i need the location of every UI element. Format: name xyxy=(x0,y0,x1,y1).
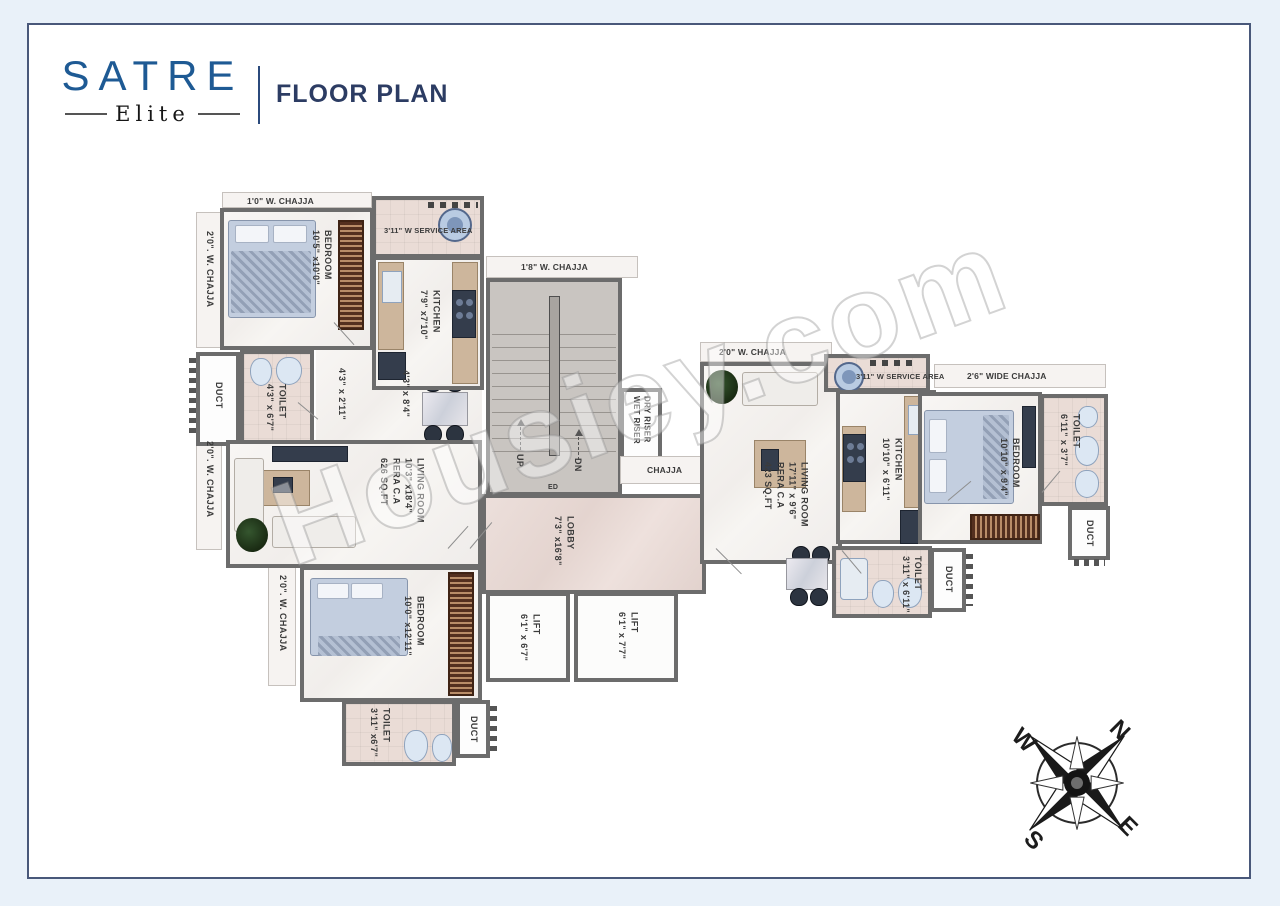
tv-unit-icon xyxy=(272,446,348,462)
dining-chair-icon xyxy=(810,588,828,606)
vent-grill-icon xyxy=(428,202,478,208)
pillow-icon xyxy=(929,419,947,453)
compass-north-label: N xyxy=(1104,715,1135,746)
stairs-ed-label: ED xyxy=(548,484,558,491)
plant-icon xyxy=(236,518,268,552)
page-title: FLOOR PLAN xyxy=(276,80,449,109)
duct1-left-unit: DUCT xyxy=(196,352,240,446)
toilet1-left-unit: TOILET 4'3" x 6'7" xyxy=(240,350,314,448)
bedroom-right-label: BEDROOM 10'10" x 9'4" xyxy=(998,438,1022,496)
duct-hatch-icon xyxy=(1074,559,1105,566)
compass-east-label: E xyxy=(1112,811,1142,841)
toilet-wc-icon xyxy=(276,357,302,385)
toilet1-right-label: TOILET 6'11" x 3'7" xyxy=(1058,414,1082,466)
bedroom2-left-label: BEDROOM 10'0" x12'11" xyxy=(402,596,426,656)
hob-icon xyxy=(452,290,476,338)
chajja-left-top: 1'0" W. CHAJJA xyxy=(222,192,372,208)
plant-icon xyxy=(706,370,738,404)
duct2-right-unit: DUCT xyxy=(930,548,966,612)
chajja-left-lower: 2'0". W. CHAJJA xyxy=(196,428,222,550)
toilet2-right-label: TOILET 3'11" x 6'11" xyxy=(900,556,924,613)
chajja-left-upper-label: 2'0". W. CHAJJA xyxy=(204,231,216,307)
down-arrow-icon xyxy=(578,432,579,460)
stairs-up-label: UP xyxy=(514,454,526,467)
duct2-left-label: DUCT xyxy=(468,716,480,743)
lift-1: LIFT 6'1" x 6'7" xyxy=(486,592,570,682)
sink-icon xyxy=(432,734,452,762)
brand-dash-left xyxy=(65,113,107,115)
duct-hatch-icon xyxy=(189,358,196,437)
toilet-wc-icon xyxy=(404,730,428,762)
desk-items-icon xyxy=(273,477,293,493)
duct-hatch-icon xyxy=(966,554,973,606)
service-area-left-label: 3'11" W SERVICE AREA xyxy=(384,226,473,235)
up-arrow-icon xyxy=(520,422,521,450)
toilet-wc-icon xyxy=(1075,470,1099,498)
toilet2-left-label: TOILET 3'11" x6'7" xyxy=(368,708,392,757)
wardrobe-icon xyxy=(970,514,1040,540)
chajja-left-bottom: 2'0". W. CHAJJA xyxy=(268,560,296,686)
toilet1-left-label: TOILET 4'3" x 6'7" xyxy=(264,384,288,431)
bedroom2-left-unit: BEDROOM 10'0" x12'11" xyxy=(300,566,482,702)
living-room-right-unit: LIVING ROOM 17'11" x 9'6" RERA C.A 423 S… xyxy=(700,362,842,564)
chajja-left-top-label: 1'0" W. CHAJJA xyxy=(247,196,314,206)
chajja-left-bottom-label: 2'0". W. CHAJJA xyxy=(277,575,289,651)
duct2-right-label: DUCT xyxy=(943,566,955,593)
lift2-label: LIFT 6'1" x 7'7" xyxy=(616,612,640,659)
sink-icon xyxy=(872,580,894,608)
chajja-mid-right: CHAJJA xyxy=(620,456,704,484)
brand-dash-right xyxy=(198,113,240,115)
duct1-right-unit: DUCT xyxy=(1068,506,1110,560)
staircase: UP DN ED xyxy=(486,278,622,496)
dresser-icon xyxy=(1022,406,1036,468)
service-area-left: 3'11" W SERVICE AREA xyxy=(372,196,484,258)
toilet1-right-unit: TOILET 6'11" x 3'7" xyxy=(1040,394,1108,506)
living-right-label: LIVING ROOM 17'11" x 9'6" RERA C.A 423 S… xyxy=(762,462,811,527)
dining-table-icon xyxy=(422,392,468,426)
washing-machine-icon xyxy=(438,208,472,242)
kitchen-left-unit: KITCHEN 7'9" x7'10" xyxy=(372,256,484,390)
chajja-left-upper: 2'0". W. CHAJJA xyxy=(196,212,222,348)
toilet2-left-unit: TOILET 3'11" x6'7" xyxy=(342,700,456,766)
quilt-icon xyxy=(231,251,311,313)
lobby: LOBBY 7'3" x16'8" xyxy=(482,494,706,594)
lobby-label: LOBBY 7'3" x16'8" xyxy=(552,516,576,566)
wardrobe-icon xyxy=(448,572,474,696)
chajja-right-top-label: 2'0" W. CHAJJA xyxy=(719,347,786,357)
lift1-label: LIFT 6'1" x 6'7" xyxy=(518,614,542,661)
stair-divider xyxy=(549,296,560,456)
dining-table-icon xyxy=(786,558,828,590)
chajja-mid-top: 1'8" W. CHAJJA xyxy=(486,256,638,278)
service-area-right: 3'11" W SERVICE AREA xyxy=(824,354,930,392)
duct-hatch-icon xyxy=(490,706,497,752)
brand-logo: SATRE Elite xyxy=(55,52,250,126)
chajja-right-wide-label: 2'6" WIDE CHAJJA xyxy=(967,371,1047,381)
chajja-mid-right-label: CHAJJA xyxy=(647,465,682,475)
service-area-right-label: 3'11" W SERVICE AREA xyxy=(856,372,945,381)
chajja-right-wide: 2'6" WIDE CHAJJA xyxy=(934,364,1106,388)
bed-icon xyxy=(228,220,316,318)
pillow-icon xyxy=(235,225,269,243)
kitchen-counter-icon xyxy=(378,262,404,350)
bedroom1-left-label: BEDROOM 10'5" x10'0" xyxy=(310,230,334,285)
brand-subtitle: Elite xyxy=(115,102,190,126)
sink-icon xyxy=(250,358,272,386)
compass-south-label: S xyxy=(1018,825,1048,855)
burner-icon xyxy=(456,299,463,306)
pillow-icon xyxy=(351,583,383,599)
riser-label: DRY RISER WET RISER xyxy=(630,396,652,444)
duct1-left-label: DUCT xyxy=(213,382,225,409)
living-room-left-unit: LIVING ROOM 10'3" x18'4" RERA C.A 626 SQ… xyxy=(226,440,482,568)
chajja-mid-top-label: 1'8" W. CHAJJA xyxy=(521,262,588,272)
pillow-icon xyxy=(317,583,349,599)
lift-2: LIFT 6'1" x 7'7" xyxy=(574,592,678,682)
stairs-dn-label: DN xyxy=(572,458,584,472)
wardrobe-icon xyxy=(338,220,364,330)
passage2-label: 4'3" x 8'4" xyxy=(400,370,412,417)
sink-icon xyxy=(382,271,402,303)
brand-name: SATRE xyxy=(55,52,250,100)
quilt-icon xyxy=(318,636,400,656)
chajja-left-lower-label: 2'0". W. CHAJJA xyxy=(204,441,216,517)
vent-grill-icon xyxy=(870,360,918,366)
kitchen-right-label: KITCHEN 10'10" x 6'11" xyxy=(880,438,904,501)
duct1-right-label: DUCT xyxy=(1084,520,1096,547)
burner-icon xyxy=(847,443,854,450)
hob-icon xyxy=(843,434,866,482)
pillow-icon xyxy=(273,225,307,243)
pillow-icon xyxy=(929,459,947,493)
duct2-left-unit: DUCT xyxy=(456,700,490,758)
compass-rose-icon: N E S W xyxy=(1002,708,1152,863)
chajja-right-top: 2'0" W. CHAJJA xyxy=(700,342,832,362)
kitchen-left-label: KITCHEN 7'9" x7'10" xyxy=(418,290,442,340)
sofa-icon xyxy=(272,516,356,548)
header-divider xyxy=(258,66,260,124)
dining-chair-icon xyxy=(790,588,808,606)
sofa-icon xyxy=(742,372,818,406)
bedroom1-left-unit: BEDROOM 10'5" x10'0" xyxy=(220,208,374,350)
living-left-label: LIVING ROOM 10'3" x18'4" RERA C.A 626 SQ… xyxy=(378,458,427,523)
passage1-label: 4'3" x 2'11" xyxy=(336,368,348,420)
bedroom-right-unit: BEDROOM 10'10" x 9'4" xyxy=(918,392,1042,544)
compass-west-label: W xyxy=(1006,723,1041,758)
